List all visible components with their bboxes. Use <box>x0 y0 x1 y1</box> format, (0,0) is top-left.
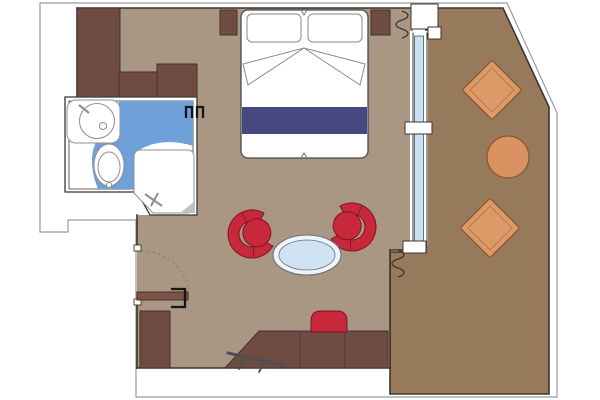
bed <box>241 10 368 158</box>
bed-runner <box>242 107 367 134</box>
toilet-flush <box>107 183 112 188</box>
window-wall-notch <box>428 27 441 39</box>
cabinet <box>140 311 170 368</box>
desk-chair <box>311 311 347 332</box>
window-glass-upper <box>415 36 424 122</box>
balcony-table <box>487 136 529 178</box>
wardrobe-right <box>157 64 197 97</box>
nightstand-right <box>371 10 390 35</box>
pillow-left <box>247 14 301 42</box>
window-sill-lower <box>403 241 426 253</box>
entry-door-leaf <box>137 292 188 300</box>
door-jamb-top <box>134 245 141 251</box>
window-mullion <box>405 122 432 134</box>
floor-plan <box>0 0 600 400</box>
wardrobe-mid <box>119 72 157 97</box>
coffee-table-top <box>279 240 335 270</box>
pillow-right <box>308 14 362 42</box>
window-wall-top-block <box>411 4 438 29</box>
bathroom <box>65 97 203 215</box>
floor-plan-canvas <box>0 0 600 400</box>
sink-drain <box>100 123 107 130</box>
wardrobe-tall <box>77 8 120 97</box>
window-glass-lower <box>415 134 424 242</box>
nightstand-left <box>220 10 237 35</box>
